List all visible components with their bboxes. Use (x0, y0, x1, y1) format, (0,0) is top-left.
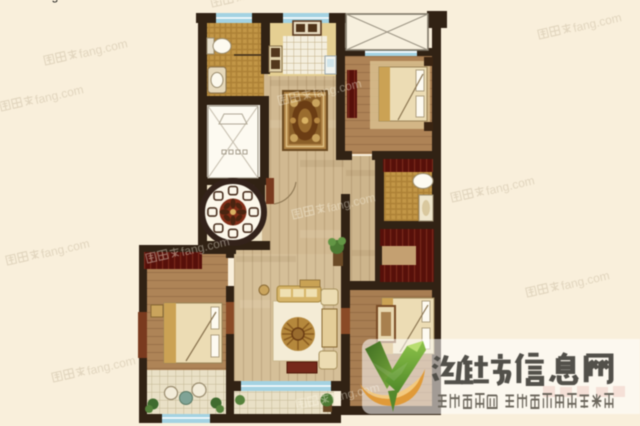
svg-text:fang.com: fang.com (35, 0, 84, 3)
